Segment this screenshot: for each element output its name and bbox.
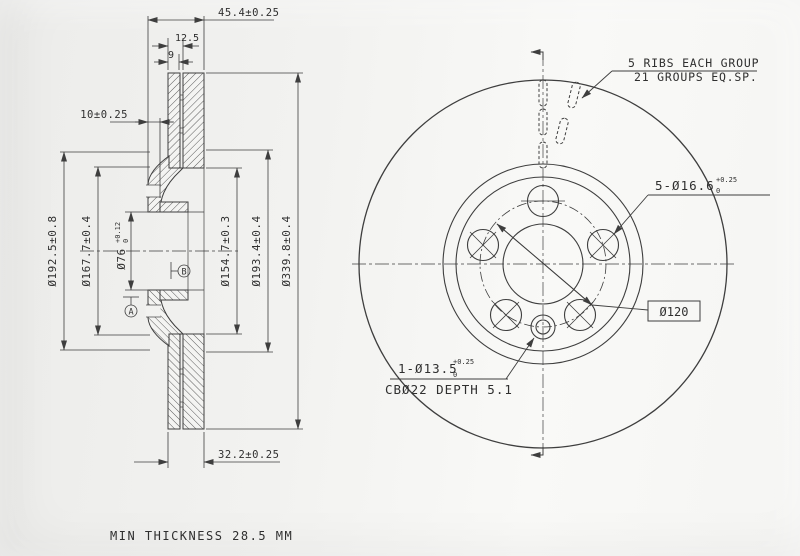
dim-hat-offset: 10±0.25 bbox=[80, 109, 174, 198]
dim-hat-face: Ø193.4±0.4 bbox=[206, 150, 273, 352]
dim-hat-od-label: Ø192.5±0.8 bbox=[46, 215, 59, 286]
bolt-holes-tol-lower: 0 bbox=[716, 187, 720, 195]
section-top-half bbox=[146, 73, 205, 212]
front-view: 5 RIBS EACH GROUP 21 GROUPS EQ.SP. 5-Ø16… bbox=[352, 52, 770, 455]
dim-bore-tol-upper: +0.12 bbox=[114, 222, 122, 243]
dim-flange-step-label: Ø167.7±0.4 bbox=[80, 215, 93, 286]
section-cut-marks bbox=[531, 52, 543, 455]
dim-bore: Ø76 +0.12 0 bbox=[114, 212, 148, 290]
datum-b-label: B bbox=[181, 268, 186, 278]
section-view: 45.4±0.25 12.5 9 10±0.25 bbox=[46, 7, 303, 468]
dim-overall-width-label: 45.4±0.25 bbox=[218, 7, 279, 19]
datum-a-label: A bbox=[128, 308, 133, 318]
counterbore-note: CBØ22 DEPTH 5.1 bbox=[385, 382, 513, 397]
ribs-note-line1: 5 RIBS EACH GROUP bbox=[628, 56, 759, 70]
dim-bore-label: Ø76 bbox=[115, 248, 128, 269]
dim-outer-diameter-label: Ø339.8±0.4 bbox=[280, 215, 293, 286]
pin-hole-tol-upper: +0.25 bbox=[453, 358, 474, 366]
dim-ring-width-label: 32.2±0.25 bbox=[218, 449, 279, 461]
cooling-rib-symbols bbox=[539, 80, 581, 168]
pin-hole-callout: 1-Ø13.5 +0.25 0 CBØ22 DEPTH 5.1 bbox=[385, 338, 534, 397]
dim-hat-face-label: Ø193.4±0.4 bbox=[250, 215, 263, 286]
pin-hole-label: 1-Ø13.5 bbox=[398, 361, 458, 376]
dim-vent-inner: Ø154.7±0.3 bbox=[206, 168, 242, 334]
dim-plate-gap-label: 12.5 bbox=[175, 33, 199, 44]
min-thickness-note: MIN THICKNESS 28.5 MM bbox=[110, 529, 293, 543]
dim-plate-gap-width: 12.5 bbox=[152, 33, 199, 70]
outboard-friction-plate bbox=[168, 73, 180, 168]
dim-plate-thickness-label: 9 bbox=[168, 50, 174, 61]
datum-a-flag: A bbox=[123, 297, 139, 318]
datum-b-flag: B bbox=[171, 262, 190, 279]
ribs-note-line2: 21 GROUPS EQ.SP. bbox=[634, 70, 758, 84]
dim-plate-thickness: 9 bbox=[154, 50, 193, 70]
inboard-friction-plate bbox=[183, 73, 204, 168]
dim-vent-inner-label: Ø154.7±0.3 bbox=[219, 215, 232, 286]
bolt-holes-label: 5-Ø16.6 bbox=[655, 178, 715, 193]
wheel-bolt-hole-gap bbox=[146, 185, 161, 197]
dim-ring-width: 32.2±0.25 bbox=[134, 432, 280, 468]
dim-hat-offset-label: 10±0.25 bbox=[80, 109, 128, 121]
pin-hole-tol-lower: 0 bbox=[453, 371, 457, 379]
bolt-holes-callout: 5-Ø16.6 +0.25 0 bbox=[614, 176, 770, 234]
hub-boss-section bbox=[160, 202, 188, 212]
bolt-circle-dimension: Ø120 bbox=[497, 224, 700, 321]
dim-bore-tol-lower: 0 bbox=[122, 239, 130, 243]
drawing-canvas: 45.4±0.25 12.5 9 10±0.25 bbox=[0, 0, 800, 556]
bolt-holes-tol-upper: +0.25 bbox=[716, 176, 737, 184]
bolt-circle-label: Ø120 bbox=[660, 305, 689, 319]
drawing-sheet: 45.4±0.25 12.5 9 10±0.25 bbox=[0, 0, 800, 556]
